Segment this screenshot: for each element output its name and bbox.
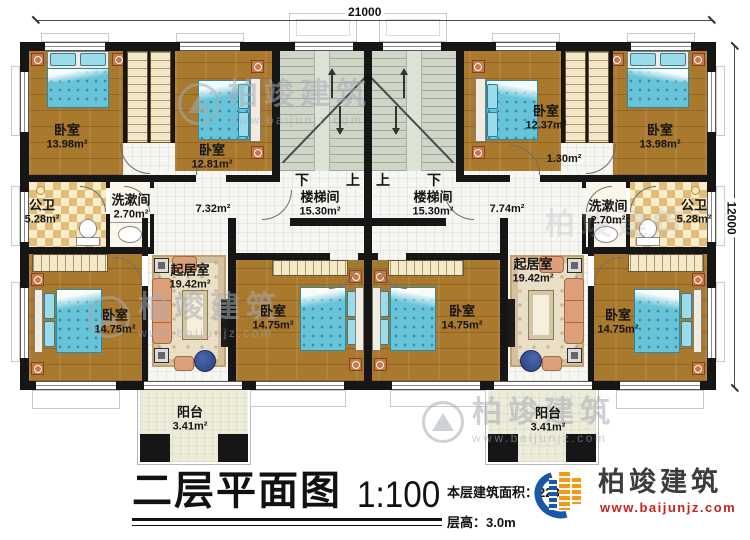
pillow	[681, 293, 692, 319]
wall	[372, 253, 378, 260]
pillow	[660, 53, 686, 66]
window	[383, 42, 441, 51]
stair-stringer	[406, 51, 422, 171]
floor-drain-icon	[691, 186, 700, 195]
wall	[456, 51, 464, 182]
sink-icon	[594, 226, 618, 243]
pillow	[487, 84, 498, 109]
wall	[588, 286, 594, 381]
dimension-top-value: 21000	[345, 5, 384, 19]
pillow	[630, 53, 656, 66]
window-sill	[716, 282, 725, 362]
bed	[390, 287, 436, 351]
wall	[561, 51, 565, 143]
nightstand	[692, 273, 705, 286]
toilet-tank	[636, 237, 660, 246]
pillow	[681, 321, 692, 347]
window	[620, 381, 700, 390]
bed-headboard	[372, 287, 381, 351]
pillow	[487, 112, 498, 137]
wall	[372, 218, 446, 226]
nightstand	[374, 358, 387, 371]
window-sill	[390, 390, 486, 407]
window	[707, 192, 716, 242]
wall	[586, 51, 588, 143]
wall	[582, 214, 586, 247]
window	[631, 42, 691, 51]
wall	[540, 175, 716, 182]
window-sill	[627, 33, 695, 42]
coffee-table	[528, 290, 554, 340]
armchair	[539, 256, 564, 273]
wall	[609, 51, 613, 143]
window-sill	[616, 390, 704, 409]
window	[707, 288, 716, 358]
wall	[582, 247, 716, 254]
wall	[582, 182, 586, 188]
nightstand	[472, 60, 485, 73]
balcony-pillar	[488, 434, 518, 462]
floor-plan-canvas: 卧室13.98m² 卧室12.81m² 公卫5.28m² 洗漱间2.70m² 7…	[0, 0, 750, 540]
wall	[626, 182, 630, 188]
wardrobe	[628, 254, 704, 272]
bed	[634, 289, 680, 353]
wardrobe	[565, 51, 586, 143]
bed-headboard	[475, 78, 486, 142]
window-sill	[386, 19, 440, 36]
stair-direction-arrow	[403, 74, 405, 98]
nightstand	[692, 53, 705, 66]
wall	[464, 175, 510, 182]
window	[496, 42, 556, 51]
hallway-floor	[372, 171, 588, 260]
balcony-pillar	[566, 434, 596, 462]
stair-arrow-head	[400, 68, 408, 75]
wall	[500, 218, 508, 381]
window-sill	[716, 66, 725, 136]
armchair	[542, 356, 562, 371]
nightstand	[692, 362, 705, 375]
window	[392, 381, 480, 390]
unit-right	[0, 0, 736, 540]
stair-direction-arrow	[395, 106, 397, 130]
dimension-right-value: 12000	[725, 198, 739, 237]
tv	[508, 299, 515, 347]
wall	[626, 214, 630, 247]
window-sill	[492, 33, 560, 42]
bed-headboard	[693, 289, 702, 353]
wall	[368, 42, 372, 390]
stair-arrow-head	[392, 128, 400, 135]
nightstand	[472, 146, 485, 159]
sofa	[564, 278, 584, 344]
plant-icon	[520, 350, 542, 372]
bed	[627, 68, 689, 108]
toilet-icon	[639, 219, 657, 238]
end-table	[567, 258, 582, 273]
window	[707, 72, 716, 132]
wall	[588, 218, 594, 256]
wall	[406, 253, 500, 260]
wardrobe	[588, 51, 609, 143]
window-sill	[716, 186, 725, 246]
balcony-door	[494, 381, 592, 390]
end-table	[567, 348, 582, 363]
dimension-line-top	[36, 20, 712, 21]
